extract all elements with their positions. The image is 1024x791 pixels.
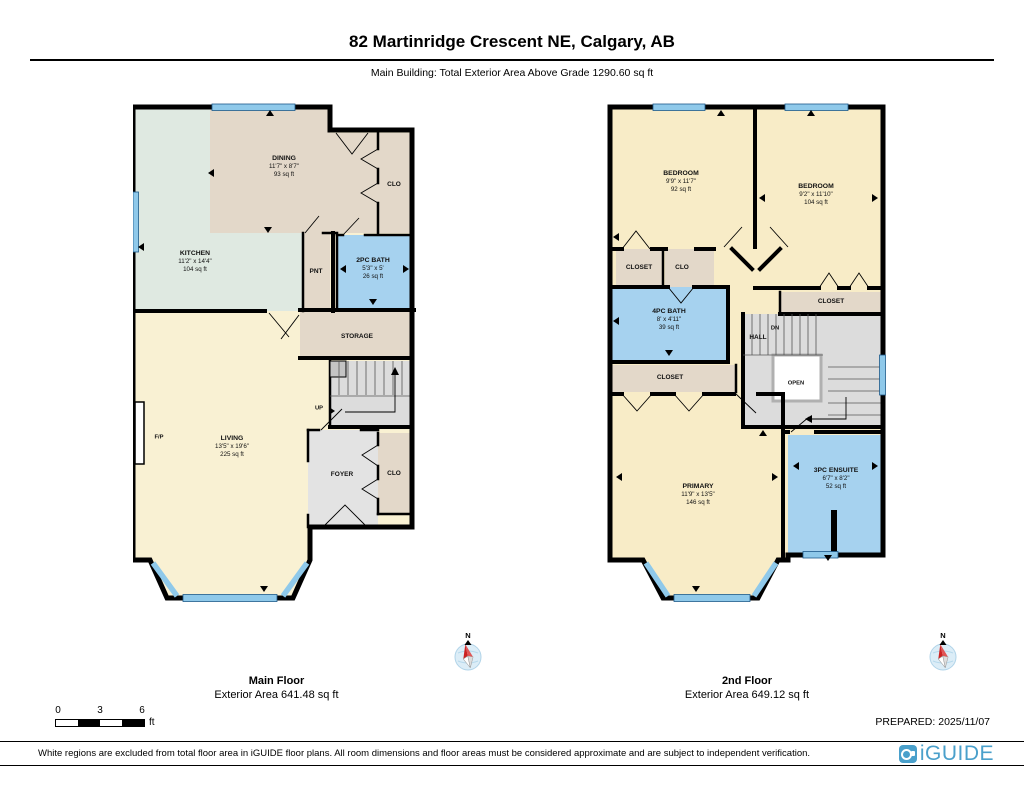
fireplace bbox=[135, 402, 144, 464]
label-up: UP bbox=[315, 405, 323, 412]
room-label-2pc-bath: 2PC BATH 5'3" x 5' 26 sq ft bbox=[356, 257, 389, 281]
label-closet-2: CLOSET bbox=[657, 374, 683, 382]
scale-tick-3: 3 bbox=[97, 705, 103, 716]
footer-strip: White regions are excluded from total fl… bbox=[0, 741, 1024, 766]
label-storage: STORAGE bbox=[341, 333, 373, 341]
compass-second-floor: N bbox=[925, 629, 961, 675]
label-closet-3: CLOSET bbox=[818, 298, 844, 306]
iguide-logo-text: iGUIDE bbox=[920, 742, 994, 766]
room-label-living: LIVING 13'5" x 19'6" 225 sq ft bbox=[215, 435, 249, 459]
iguide-logo: iGUIDE bbox=[899, 742, 994, 766]
room-fills bbox=[610, 107, 883, 598]
total-area-subtitle: Main Building: Total Exterior Area Above… bbox=[0, 67, 1024, 79]
scale-tick-0: 0 bbox=[55, 705, 61, 716]
compass-n-label: N bbox=[465, 631, 470, 640]
label-closet-1: CLOSET bbox=[626, 264, 652, 272]
ensuite-wall-stub bbox=[831, 510, 837, 555]
main-floor-caption: Main Floor Exterior Area 641.48 sq ft bbox=[133, 674, 420, 703]
room-label-bedroom-2: BEDROOM 9'2" x 11'10" 104 sq ft bbox=[798, 183, 834, 207]
label-clo: CLO bbox=[675, 264, 689, 272]
compass-n-label: N bbox=[940, 631, 945, 640]
label-foyer: FOYER bbox=[331, 471, 353, 479]
label-fireplace: F/P bbox=[154, 434, 163, 441]
second-floor-caption: 2nd Floor Exterior Area 649.12 sq ft bbox=[606, 674, 888, 703]
room-fills bbox=[133, 107, 412, 598]
scale-unit: ft bbox=[149, 717, 155, 728]
second-floor-drawing bbox=[606, 97, 888, 602]
room-label-bedroom-1: BEDROOM 9'9" x 11'7" 92 sq ft bbox=[663, 170, 699, 194]
prepared-date: PREPARED: 2025/11/07 bbox=[700, 716, 990, 728]
label-dn: DN bbox=[771, 325, 779, 332]
main-floor-plan: DINING 11'7" x 8'7" 93 sq ft KITCHEN 11'… bbox=[133, 97, 420, 602]
label-hall: HALL bbox=[749, 334, 766, 342]
scale-tick-6: 6 bbox=[139, 705, 145, 716]
room-label-primary: PRIMARY 11'9" x 13'5" 146 sq ft bbox=[681, 483, 714, 507]
label-pantry: PNT bbox=[310, 268, 323, 276]
page-title: 82 Martinridge Crescent NE, Calgary, AB bbox=[0, 32, 1024, 52]
title-separator bbox=[30, 59, 994, 61]
floorplan-page: 82 Martinridge Crescent NE, Calgary, AB … bbox=[0, 0, 1024, 791]
label-clo-top: CLO bbox=[387, 181, 401, 189]
iguide-logo-icon bbox=[899, 745, 917, 763]
room-label-kitchen: KITCHEN 11'2" x 14'4" 104 sq ft bbox=[178, 250, 211, 274]
scale-bar: 0 3 6 ft bbox=[55, 705, 175, 727]
room-label-4pc-bath: 4PC BATH 8' x 4'11" 39 sq ft bbox=[652, 308, 685, 332]
clo-area bbox=[665, 249, 714, 287]
second-floor-plan: BEDROOM 9'9" x 11'7" 92 sq ft BEDROOM 9'… bbox=[606, 97, 888, 602]
compass-main-floor: N bbox=[450, 629, 486, 675]
room-label-dining: DINING 11'7" x 8'7" 93 sq ft bbox=[269, 155, 299, 179]
room-label-3pc-ensuite: 3PC ENSUITE 6'7" x 8'2" 52 sq ft bbox=[814, 467, 859, 491]
label-open: OPEN bbox=[788, 380, 804, 387]
label-clo-bottom: CLO bbox=[387, 470, 401, 478]
disclaimer-text: White regions are excluded from total fl… bbox=[38, 748, 810, 759]
scale-bar-segments bbox=[55, 719, 145, 727]
